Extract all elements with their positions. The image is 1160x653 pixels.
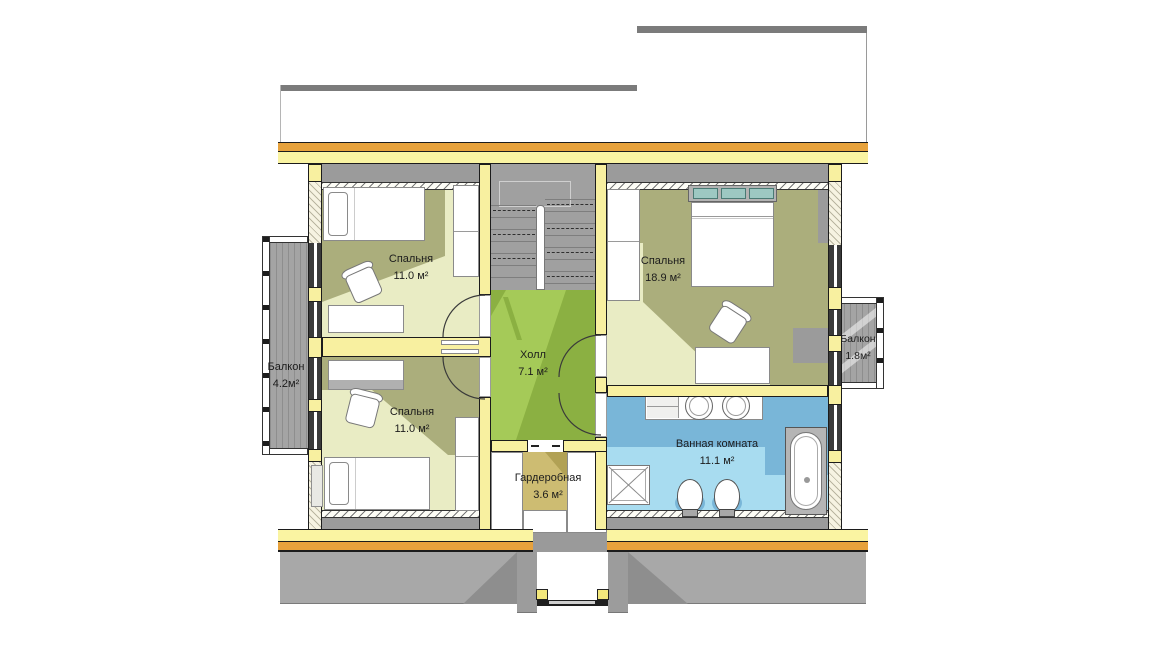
wall-stub: [829, 385, 841, 405]
room-area: 4.2м²: [268, 378, 305, 390]
bed-pillow-teal: [749, 188, 774, 199]
door-leaf-opening: [595, 393, 607, 437]
door-leaf-opening: [479, 357, 491, 397]
bed-double-headboard: [688, 185, 777, 202]
porch-roof-strip: [533, 533, 607, 552]
stair-tread: [491, 253, 536, 254]
wall-junction: [595, 377, 607, 393]
bed-blanket-line: [355, 458, 356, 509]
balcony-left: [262, 236, 308, 455]
bed-pillow-teal: [721, 188, 746, 199]
closet: [453, 185, 479, 277]
bed-double: [691, 202, 774, 287]
vanity-drawer-line: [647, 406, 678, 407]
porch-railing-bar: [549, 601, 595, 604]
stair-tread: [545, 211, 595, 212]
bed-single: [323, 187, 425, 241]
bathtub-drain: [804, 477, 810, 483]
bathtub-basin: [790, 432, 822, 510]
room-area: 18.9 м²: [641, 272, 685, 284]
room-label-wardrobe: Гардеробная 3.6 м²: [515, 472, 582, 501]
wall-stub: [829, 450, 841, 463]
stair-tread: [545, 223, 595, 224]
stair-cut-dash: [493, 258, 535, 259]
balcony-door-frame: [309, 243, 321, 287]
bed-pillow-teal: [693, 188, 718, 199]
room-area: 11.1 м²: [676, 455, 758, 467]
stair-cut-dash: [493, 234, 535, 235]
desk: [695, 347, 770, 384]
porch-post: [536, 589, 548, 600]
wall-stub: [829, 164, 841, 182]
room-label-balcony-right: Балкон 1.8м²: [840, 333, 875, 362]
stair-tread: [491, 205, 536, 206]
wardrobe-unit: [607, 189, 640, 301]
stair-tread: [545, 259, 595, 260]
wall-hall-wardrobe-right: [563, 440, 607, 452]
shower: [607, 465, 650, 505]
chair-seat: [344, 393, 380, 429]
room-name: Спальня: [390, 406, 434, 418]
room-name: Холл: [518, 349, 548, 361]
window-frame: [309, 302, 321, 337]
stair-cut-dash: [547, 204, 593, 205]
bottom-band-orange: [607, 542, 868, 550]
stair-tread: [491, 241, 536, 242]
exterior-wall-left: [308, 164, 322, 530]
door-leaf: [441, 349, 479, 354]
bottom-band-line2: [607, 550, 868, 552]
room-name: Балкон: [840, 333, 875, 345]
bed-single: [324, 457, 430, 510]
door-leaf: [441, 340, 479, 345]
top-band-yellow: [278, 152, 868, 163]
room-name: Балкон: [268, 361, 305, 373]
room-name: Спальня: [641, 255, 685, 267]
bed-pillow: [329, 462, 349, 505]
stair-cut-dash: [493, 210, 535, 211]
porch-column-right: [608, 552, 628, 613]
room-label-hall: Холл 7.1 м²: [518, 349, 548, 378]
wall-stub: [829, 287, 841, 310]
balcony-deck: [270, 243, 308, 448]
balcony-door-frame: [829, 245, 841, 287]
window-frame: [829, 405, 841, 450]
wardrobe-door-opening: [528, 440, 563, 452]
roof-slope-right: [628, 552, 866, 604]
bottom-wall-band-left: [278, 529, 533, 552]
stair-cut-dash: [547, 228, 593, 229]
bedroom-right-underroof: [607, 164, 828, 182]
balcony-door-frame: [309, 358, 321, 399]
stair-tread: [545, 271, 595, 272]
wall-stub: [309, 287, 321, 302]
window-frame: [829, 352, 841, 385]
bed-blanket-fold: [692, 216, 773, 219]
stair-tread: [545, 235, 595, 236]
closet-shelf-line: [608, 241, 639, 242]
top-wall-band: [278, 142, 868, 164]
bed-pillow: [328, 192, 348, 236]
room-name: Спальня: [389, 253, 433, 265]
top-band-orange: [278, 143, 868, 151]
wall-hall-wardrobe: [491, 440, 528, 452]
room-name: Гардеробная: [515, 472, 582, 484]
bottom-band-yellow: [607, 529, 868, 541]
wardrobe-door-mark: [531, 445, 539, 447]
room-area: 11.0 м²: [390, 423, 434, 435]
stair-tread: [545, 283, 595, 284]
closet-shelf-line: [456, 456, 478, 457]
room-area: 1.8м²: [840, 350, 875, 362]
window-frame: [829, 310, 841, 335]
bottom-band-yellow: [278, 529, 533, 541]
room-area: 11.0 м²: [389, 270, 433, 282]
bottom-band-orange: [278, 542, 533, 550]
stair-tread: [545, 247, 595, 248]
roof-slope-left: [280, 552, 517, 604]
toilet: [677, 479, 703, 513]
bedroom-top-left-underroof: [322, 164, 479, 182]
roof-right-edge: [637, 26, 867, 33]
toilet-tank: [719, 509, 735, 517]
roof-left-edge: [281, 85, 638, 91]
vanity-cabinet: [647, 395, 679, 418]
porch-railing: [537, 600, 608, 606]
closet: [455, 417, 479, 511]
wall-stub: [309, 399, 321, 412]
wall-hall-right-rooms: [595, 164, 607, 335]
bedroom-right-low-cabinet: [793, 328, 828, 363]
stair-tread: [491, 277, 536, 278]
wall-stub: [309, 164, 321, 182]
wall-left-bedrooms-hall: [479, 164, 491, 295]
wall-bedroom-bathroom: [607, 385, 828, 397]
toilet-tank: [682, 509, 698, 517]
stair-tread: [491, 229, 536, 230]
wardrobe-door-mark: [552, 445, 560, 447]
wall-left-bedrooms-hall-lower: [479, 397, 491, 530]
bedroom-right-wall-shadow: [818, 190, 828, 243]
roof-right: [637, 26, 867, 143]
wall-stub: [309, 449, 321, 462]
roof-left: [280, 85, 637, 143]
room-label-bedroom-bottom-left: Спальня 11.0 м²: [390, 406, 434, 435]
wall-stub: [309, 337, 321, 358]
bedroom-bottom-left-headroom-line: [322, 510, 479, 518]
door-leaf-opening: [595, 335, 607, 377]
desk: [328, 305, 404, 333]
room-label-bedroom-top-left: Спальня 11.0 м²: [389, 253, 433, 282]
room-label-bathroom: Ванная комната 11.1 м²: [676, 438, 758, 467]
bottom-band-line2: [278, 550, 533, 552]
bottom-wall-band-right: [607, 529, 868, 552]
stair-tread: [545, 199, 595, 200]
room-name: Ванная комната: [676, 438, 758, 450]
stair-cut-dash: [547, 276, 593, 277]
room-area: 3.6 м²: [515, 489, 582, 501]
closet-shelf-line: [454, 231, 478, 232]
porch-post: [597, 589, 609, 600]
stair-cut-dash: [547, 252, 593, 253]
desk: [328, 360, 404, 390]
porch-column-left: [517, 552, 537, 613]
bathtub: [785, 427, 827, 515]
balcony-railing-side: [262, 236, 270, 455]
door-leaf-opening: [479, 295, 491, 337]
balcony-railing-side: [876, 297, 884, 389]
window-glazing: [311, 465, 323, 507]
wall-stub: [829, 335, 841, 352]
room-label-balcony-left: Балкон 4.2м²: [268, 361, 305, 390]
stair-tread: [491, 217, 536, 218]
top-band-line3: [278, 163, 868, 164]
window-frame: [309, 412, 321, 449]
staircase: [491, 164, 595, 290]
floor-plan: Спальня 11.0 м² Спальня 11.0 м² Спальня …: [0, 0, 1160, 653]
stair-tread: [491, 265, 536, 266]
bed-blanket-line: [354, 188, 355, 240]
stair-handrail: [536, 205, 545, 290]
room-area: 7.1 м²: [518, 366, 548, 378]
desk-shadow: [329, 380, 403, 389]
room-label-bedroom-right: Спальня 18.9 м²: [641, 255, 685, 284]
toilet: [714, 479, 740, 513]
